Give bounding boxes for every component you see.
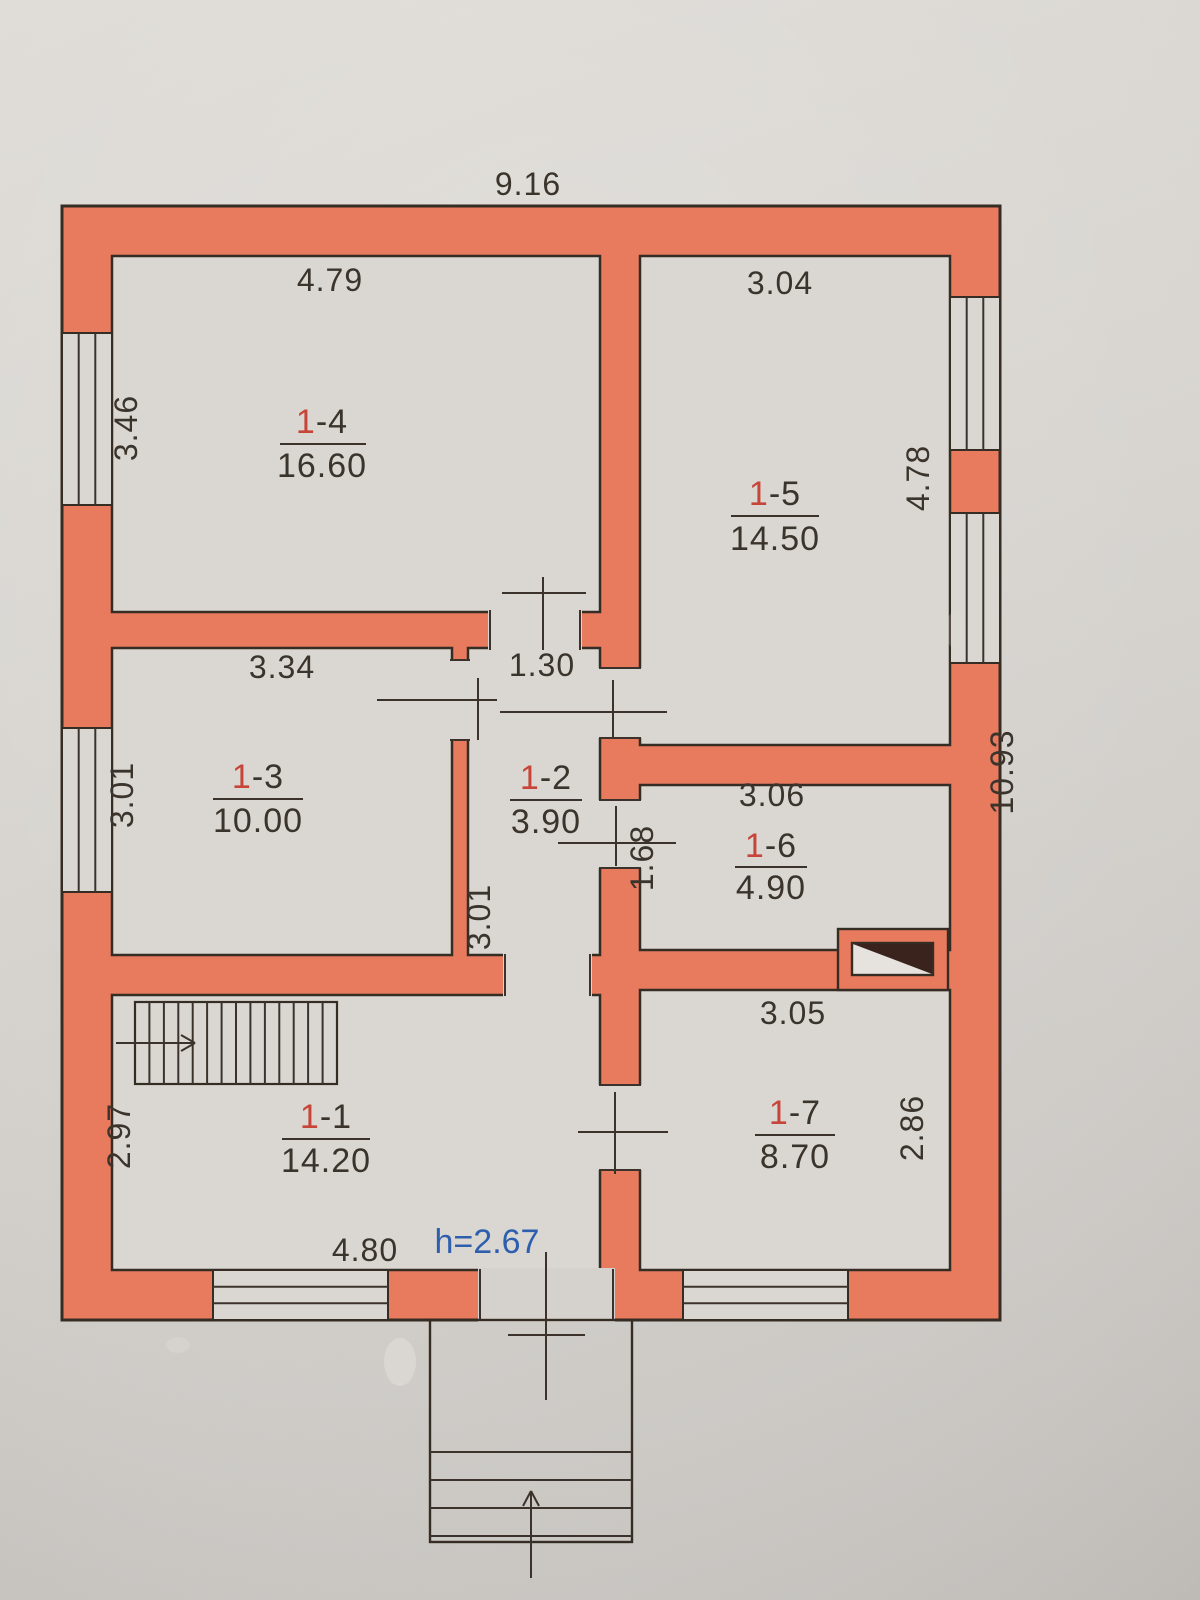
dimension-label: 1.68 [624,825,660,891]
dimension-label: 4.80 [332,1232,398,1268]
dimension-label: 3.05 [760,995,826,1031]
room-area-label: 16.60 [277,447,367,485]
ventilation-shaft-icon [838,929,948,990]
room-number-prefix: 1 [745,827,765,865]
room-number-prefix: 1 [769,1094,789,1132]
window [683,1270,848,1320]
dimension-label: 2.86 [894,1095,930,1161]
room-label-1-6: 1-6 4.90 [735,827,807,907]
ceiling-height-label: h=2.67 [435,1223,540,1261]
dimension-label: 10.93 [984,729,1020,814]
svg-text:1-6: 1-6 [745,827,797,865]
dimension-label: 4.79 [297,262,363,298]
room-area-label: 3.90 [511,803,581,841]
room-area-label: 4.90 [736,869,806,907]
room-area-label: 14.50 [730,520,820,558]
svg-text:1-7: 1-7 [769,1094,821,1132]
room-number-prefix: 1 [232,758,252,796]
floor-plan-image: 9.16 4.79 3.04 3.46 4.78 3.34 1.30 3.01 … [0,0,1200,1600]
room-number-suffix: -5 [769,475,801,513]
window [950,297,1000,450]
room-number-suffix: -4 [316,403,348,441]
svg-text:1-1: 1-1 [300,1098,352,1136]
door-opening [488,609,582,651]
door-opening [598,668,642,738]
room-number-suffix: -6 [765,827,797,865]
dimension-label: 3.01 [104,762,140,828]
room-number-suffix: -7 [789,1094,821,1132]
dimension-label: 1.30 [509,647,575,683]
dimension-label: 3.01 [461,884,497,950]
room-number-suffix: -1 [320,1098,352,1136]
interior-stairs [116,1002,337,1084]
svg-text:1-5: 1-5 [749,475,801,513]
room-number-prefix: 1 [520,759,540,797]
room-area-label: 10.00 [213,802,303,840]
window [213,1270,388,1320]
room-number-suffix: -3 [252,758,284,796]
room-1-4-floor [112,256,600,612]
room-number-prefix: 1 [749,475,769,513]
dimension-label: 4.78 [900,445,936,511]
room-number-prefix: 1 [300,1098,320,1136]
svg-text:1-4: 1-4 [296,403,348,441]
door-opening [503,953,592,997]
door-opening [598,1085,642,1170]
svg-text:1-2: 1-2 [520,759,572,797]
room-number-suffix: -2 [540,759,572,797]
dimension-label: 3.06 [739,777,805,813]
dimension-label: 3.04 [747,265,813,301]
room-area-label: 8.70 [760,1138,830,1176]
window [62,333,112,505]
dimension-label: 2.97 [101,1103,137,1169]
room-number-prefix: 1 [296,403,316,441]
dimension-label: 3.46 [108,395,144,461]
room-label-1-2: 1-2 3.90 [510,759,582,841]
room-area-label: 14.20 [281,1142,371,1180]
dimension-label: 9.16 [495,166,561,202]
svg-text:1-3: 1-3 [232,758,284,796]
dimension-label: 3.34 [249,649,315,685]
